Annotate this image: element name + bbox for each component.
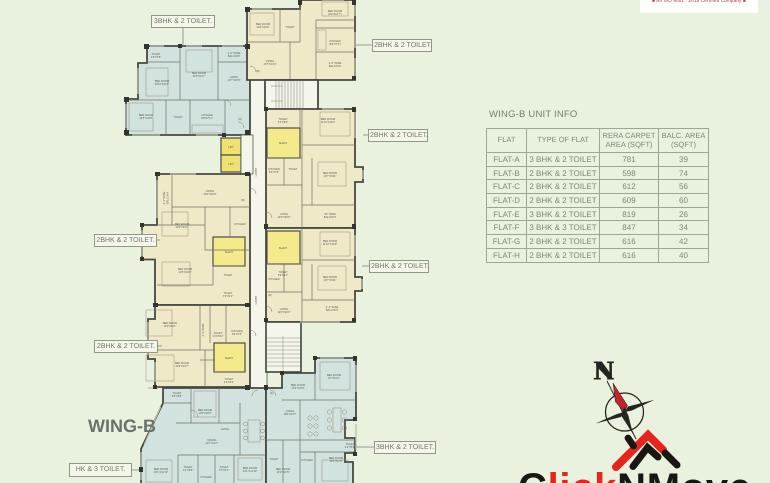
svg-text:10'2"X11'1": 10'2"X11'1": [175, 225, 188, 229]
svg-text:TOILET: TOILET: [223, 273, 232, 277]
svg-text:(9'2"X10'7"): (9'2"X10'7"): [328, 12, 342, 16]
svg-text:10'2"X11'5": 10'2"X11'5": [276, 470, 289, 474]
svg-text:(A): (A): [238, 117, 242, 121]
svg-text:TOILET: TOILET: [173, 115, 182, 119]
svg-text:10'2"X11'7": 10'2"X11'7": [192, 74, 205, 78]
svg-text:BALCONY: BALCONY: [228, 54, 241, 58]
svg-text:4'1"X6'2": 4'1"X6'2": [278, 120, 288, 124]
svg-text:15'7"X10'4": 15'7"X10'4": [263, 62, 276, 66]
svg-text:(B): (B): [241, 198, 245, 202]
svg-text:14'5"X10'5": 14'5"X10'5": [139, 116, 152, 120]
svg-text:4'1"X6'5": 4'1"X6'5": [183, 468, 193, 472]
svg-text:7'4"X4'1": 7'4"X4'1": [223, 294, 233, 298]
svg-text:13'7"X10'5": 13'7"X10'5": [227, 78, 240, 82]
svg-text:10'0"X10'0": 10'0"X10'0": [198, 411, 211, 415]
svg-text:12'5"X10'0": 12'5"X10'0": [178, 270, 191, 274]
svg-text:12'6"X10'7": 12'6"X10'7": [175, 364, 188, 368]
svg-text:10'4"X10'0": 10'4"X10'0": [256, 25, 269, 29]
svg-text:4'-6"X6'2": 4'-6"X6'2": [212, 334, 223, 338]
svg-text:BALCONY: BALCONY: [324, 215, 337, 219]
svg-text:14'0"X10'0": 14'0"X10'0": [277, 310, 290, 314]
svg-text:4'-1" WIDE: 4'-1" WIDE: [162, 191, 166, 204]
svg-text:18'0"X14'7": 18'0"X14'7": [283, 412, 296, 416]
svg-text:10'4"X10'0": 10'4"X10'0": [291, 386, 304, 390]
svg-text:2'-4" WIDE: 2'-4" WIDE: [201, 323, 205, 336]
svg-text:14'0"X10'0": 14'0"X10'0": [277, 215, 290, 219]
svg-text:(8'0"X7'4"): (8'0"X7'4"): [329, 42, 341, 46]
svg-text:SHAFT: SHAFT: [225, 250, 234, 254]
svg-text:15'0"X10'0": 15'0"X10'0": [203, 192, 216, 196]
svg-text:BALCONY: BALCONY: [329, 64, 342, 68]
svg-text:4'0"X7'5": 4'0"X7'5": [151, 55, 161, 59]
svg-text:7'0"X4'1": 7'0"X4'1": [219, 468, 229, 472]
svg-text:4'1"X6'9": 4'1"X6'9": [345, 445, 355, 449]
svg-text:LOBBY: LOBBY: [254, 167, 258, 176]
svg-text:SHAFT: SHAFT: [279, 246, 288, 250]
svg-text:(B): (B): [256, 69, 260, 73]
svg-text:10'1"X11'10": 10'1"X11'10": [243, 469, 258, 473]
svg-text:6'2"X4'1": 6'2"X4'1": [278, 273, 288, 277]
svg-text:KITCHEN: KITCHEN: [234, 222, 246, 226]
svg-text:5'4"X7'9": 5'4"X7'9": [269, 170, 279, 174]
svg-text:TOILET: TOILET: [288, 167, 297, 171]
svg-text:KITCHEN: KITCHEN: [301, 458, 313, 462]
svg-text:SHAFT: SHAFT: [225, 356, 234, 360]
svg-text:BALCONY: BALCONY: [326, 308, 339, 312]
svg-text:KITCHEN: KITCHEN: [268, 277, 280, 281]
svg-text:6'6"X7'6": 6'6"X7'6": [232, 332, 242, 336]
svg-text:9'8"X7'11": 9'8"X7'11": [201, 116, 213, 120]
svg-text:11'10"X10'0": 11'10"X10'0": [323, 242, 338, 246]
svg-text:TOILET: TOILET: [269, 457, 278, 461]
svg-text:LIFT: LIFT: [228, 145, 234, 149]
svg-text:BALCONY: BALCONY: [165, 192, 169, 205]
svg-text:10'1"X11'5": 10'1"X11'5": [329, 459, 342, 463]
svg-text:6'2"X4'1": 6'2"X4'1": [224, 380, 234, 384]
svg-text:10'10"X10'1": 10'10"X10'1": [155, 82, 170, 86]
svg-text:LOBBY: LOBBY: [254, 295, 258, 304]
svg-text:10'1"X11'10": 10'1"X11'10": [154, 470, 169, 474]
svg-text:(D): (D): [268, 293, 272, 297]
svg-text:9'7"X11'4": 9'7"X11'4": [328, 376, 340, 380]
svg-text:LIVING: LIVING: [221, 427, 230, 431]
svg-text:10'2"X11'1": 10'2"X11'1": [163, 324, 176, 328]
svg-text:KITCHEN: KITCHEN: [200, 475, 212, 479]
svg-text:LIFT: LIFT: [228, 162, 234, 166]
svg-text:TOILET: TOILET: [285, 25, 294, 29]
svg-text:5'2"X6'9": 5'2"X6'9": [172, 394, 182, 398]
svg-text:10'7"X12'7": 10'7"X12'7": [205, 441, 218, 445]
svg-text:10'7"X9'11": 10'7"X9'11": [323, 174, 336, 178]
svg-text:SHAFT: SHAFT: [279, 141, 288, 145]
svg-text:(E): (E): [270, 391, 274, 395]
svg-text:11'10"X10'0": 11'10"X10'0": [321, 120, 336, 124]
svg-text:10'7"X9'11": 10'7"X9'11": [323, 278, 336, 282]
